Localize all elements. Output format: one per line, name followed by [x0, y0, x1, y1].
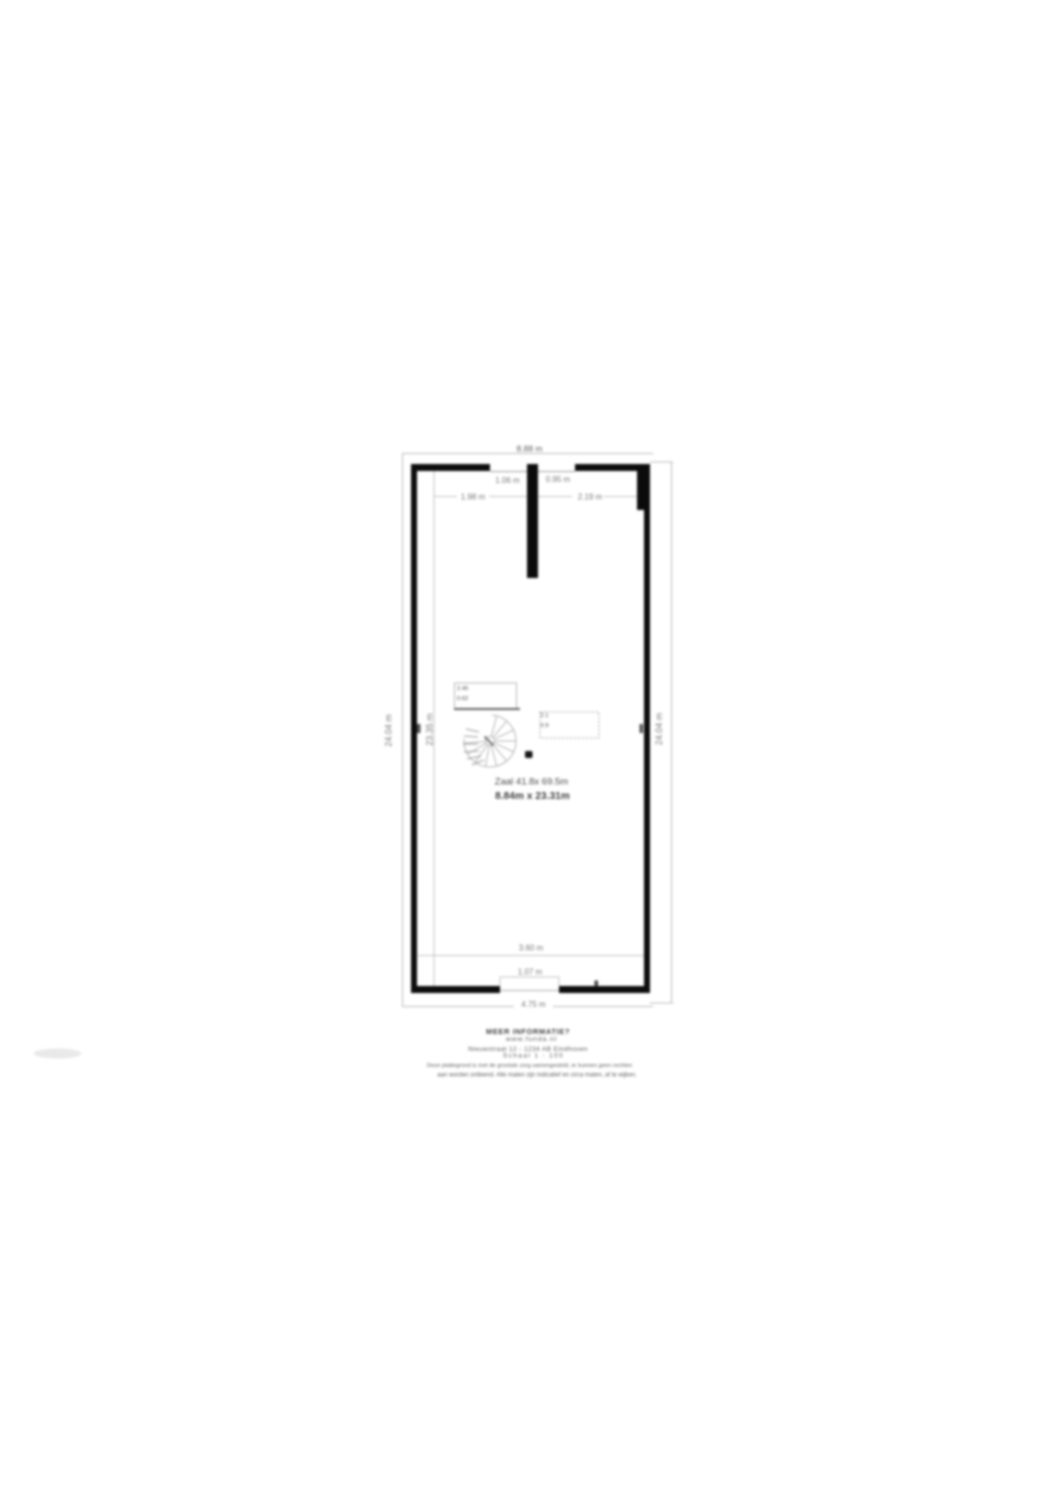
svg-text:aan worden ontleend. Alle mate: aan worden ontleend. Alle maten zijn ind…: [437, 1072, 637, 1078]
svg-text:MEER INFORMATIE?: MEER INFORMATIE?: [486, 1027, 570, 1036]
svg-text:www.funda.nl: www.funda.nl: [505, 1036, 557, 1043]
svg-text:4.75 m: 4.75 m: [521, 1000, 546, 1009]
svg-text:0.62: 0.62: [457, 696, 468, 702]
svg-text:23.35 m: 23.35 m: [425, 713, 435, 746]
svg-text:2.1: 2.1: [541, 713, 549, 719]
svg-text:1.07 m: 1.07 m: [518, 968, 543, 977]
svg-text:2.45: 2.45: [457, 686, 468, 692]
svg-text:3.60 m: 3.60 m: [519, 944, 544, 953]
svg-text:8.88 m: 8.88 m: [517, 444, 543, 454]
svg-text:Zaal 41.8x 69.5m: Zaal 41.8x 69.5m: [495, 777, 568, 788]
svg-text:0.95 m: 0.95 m: [546, 475, 571, 484]
svg-text:1.98 m: 1.98 m: [461, 493, 486, 502]
svg-text:2.19 m: 2.19 m: [578, 493, 603, 502]
svg-text:0.9: 0.9: [541, 723, 549, 729]
svg-text:1.06 m: 1.06 m: [495, 476, 520, 485]
svg-text:24.04 m: 24.04 m: [654, 713, 664, 746]
svg-text:Schaal 1 : 100: Schaal 1 : 100: [503, 1052, 564, 1059]
svg-text:24.04 m: 24.04 m: [384, 714, 394, 747]
svg-text:8.84m x 23.31m: 8.84m x 23.31m: [495, 791, 570, 802]
svg-text:Deze plattegrond is met de gro: Deze plattegrond is met de grootste zorg…: [427, 1063, 632, 1069]
